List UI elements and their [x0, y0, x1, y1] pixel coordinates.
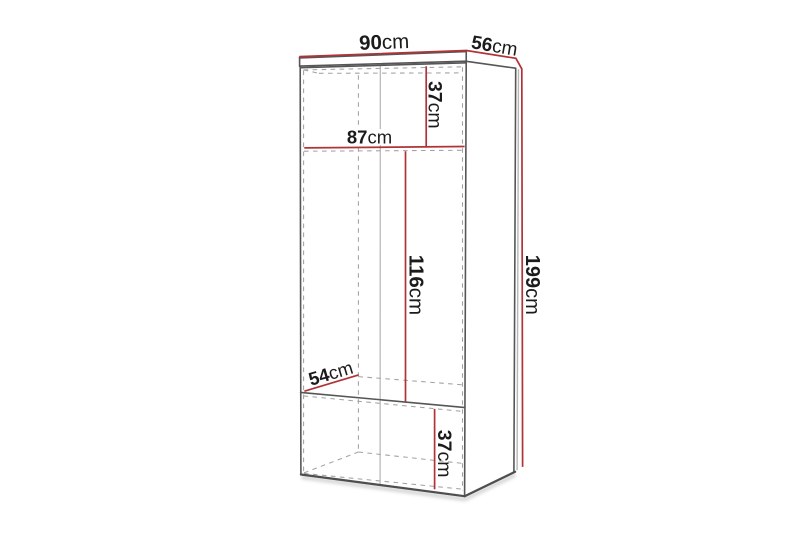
svg-text:90cm: 90cm [359, 30, 410, 55]
svg-text:87cm: 87cm [347, 127, 392, 148]
svg-text:199cm: 199cm [521, 255, 543, 315]
svg-text:37cm: 37cm [433, 430, 455, 478]
svg-text:37cm: 37cm [424, 81, 446, 129]
svg-text:116cm: 116cm [404, 255, 427, 315]
